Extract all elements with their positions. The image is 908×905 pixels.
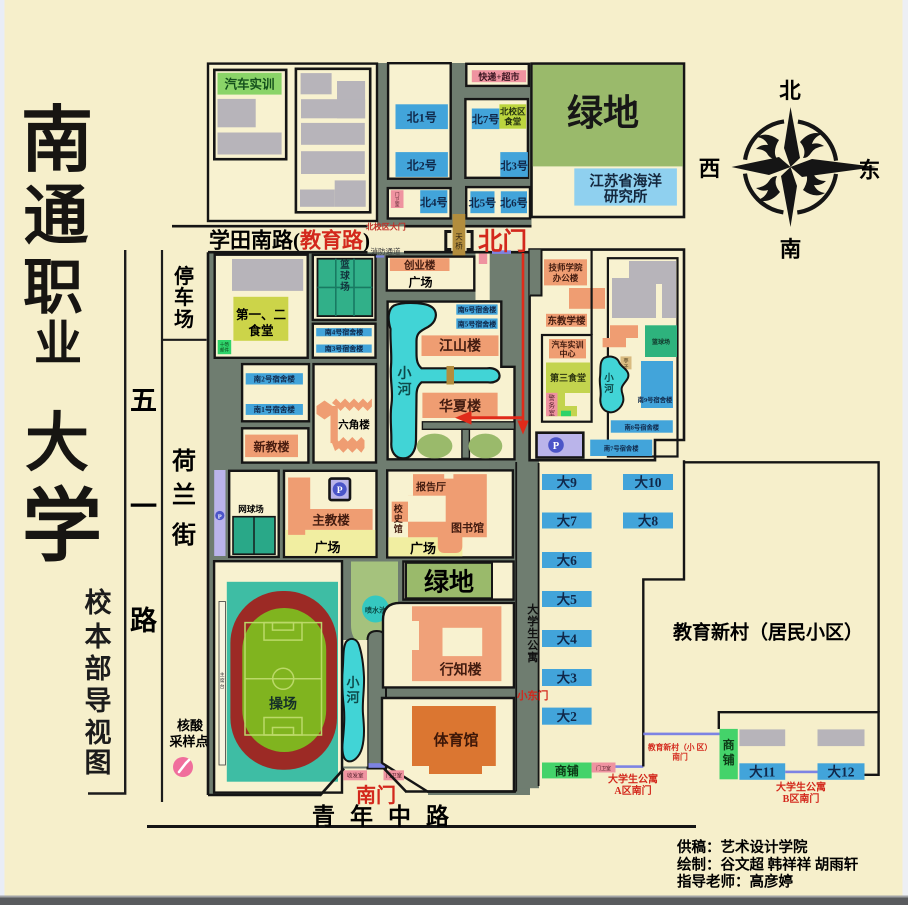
svg-text:邮件: 邮件 <box>220 347 230 354</box>
svg-text:主: 主 <box>220 671 225 678</box>
svg-text:亭: 亭 <box>623 358 628 365</box>
svg-text:南6号宿舍楼: 南6号宿舍楼 <box>458 305 497 314</box>
svg-text:街: 街 <box>171 521 196 549</box>
svg-text:学: 学 <box>22 484 102 572</box>
svg-text:席: 席 <box>220 677 225 684</box>
svg-text:史: 史 <box>394 513 404 524</box>
svg-text:大3: 大3 <box>557 669 577 685</box>
svg-text:学田南路(教育路): 学田南路(教育路) <box>209 229 370 253</box>
svg-text:路: 路 <box>130 605 158 636</box>
svg-text:南4号宿舍楼: 南4号宿舍楼 <box>325 328 364 337</box>
svg-text:南3号宿舍楼: 南3号宿舍楼 <box>325 344 364 353</box>
svg-text:指导老师：高彦婷: 指导老师：高彦婷 <box>677 873 793 891</box>
svg-text:北4号: 北4号 <box>420 195 448 209</box>
svg-text:商: 商 <box>723 737 735 752</box>
svg-text:生: 生 <box>527 626 538 640</box>
svg-text:铺: 铺 <box>723 752 735 767</box>
svg-text:台: 台 <box>220 683 225 690</box>
svg-text:绘制：谷文超 韩祥祥 胡雨轩: 绘制：谷文超 韩祥祥 胡雨轩 <box>677 856 859 874</box>
svg-text:大9: 大9 <box>557 474 577 490</box>
svg-text:北2号: 北2号 <box>407 157 437 172</box>
svg-text:第三食堂: 第三食堂 <box>550 372 586 383</box>
svg-text:南7号宿舍楼: 南7号宿舍楼 <box>604 444 639 453</box>
svg-text:馆: 馆 <box>394 523 403 534</box>
svg-text:北3号: 北3号 <box>500 159 528 173</box>
svg-text:大10: 大10 <box>635 474 662 490</box>
svg-text:第一、二: 第一、二 <box>236 307 287 322</box>
svg-text:篮: 篮 <box>339 259 350 271</box>
svg-text:部: 部 <box>85 653 112 684</box>
svg-text:职: 职 <box>23 255 83 321</box>
svg-text:操场: 操场 <box>269 696 297 713</box>
svg-text:南门: 南门 <box>672 752 688 762</box>
svg-text:一: 一 <box>130 492 157 522</box>
svg-text:核酸: 核酸 <box>177 718 204 733</box>
svg-text:P: P <box>553 441 560 452</box>
svg-text:河: 河 <box>604 383 614 395</box>
svg-text:广场: 广场 <box>408 275 432 290</box>
svg-text:场: 场 <box>174 308 194 331</box>
svg-text:场: 场 <box>340 281 350 293</box>
svg-text:研究所: 研究所 <box>604 188 648 206</box>
svg-text:北: 北 <box>779 79 801 103</box>
svg-text:绿地: 绿地 <box>424 568 474 597</box>
svg-text:汽车实训: 汽车实训 <box>224 77 274 92</box>
svg-text:球: 球 <box>340 270 350 282</box>
svg-text:门卫室: 门卫室 <box>596 765 611 772</box>
svg-text:河: 河 <box>346 690 359 705</box>
svg-text:大: 大 <box>25 408 89 479</box>
svg-text:采样点: 采样点 <box>168 734 208 749</box>
svg-text:校: 校 <box>394 503 404 514</box>
svg-text:视: 视 <box>85 718 112 748</box>
svg-text:通: 通 <box>23 181 88 253</box>
svg-text:大2: 大2 <box>557 708 577 724</box>
svg-text:办公楼: 办公楼 <box>553 273 579 283</box>
svg-text:大12: 大12 <box>828 763 855 779</box>
svg-text:荷: 荷 <box>172 448 196 475</box>
svg-text:主教楼: 主教楼 <box>312 513 350 528</box>
svg-text:小: 小 <box>603 372 614 384</box>
svg-text:校: 校 <box>85 587 112 618</box>
svg-text:创业楼: 创业楼 <box>403 258 436 271</box>
svg-text:小: 小 <box>346 675 359 690</box>
svg-text:桥: 桥 <box>455 241 463 251</box>
svg-text:大: 大 <box>527 602 538 616</box>
svg-text:南5号宿舍楼: 南5号宿舍楼 <box>458 319 497 328</box>
svg-text:警: 警 <box>548 393 555 402</box>
svg-text:食堂: 食堂 <box>247 323 273 338</box>
svg-text:导: 导 <box>85 686 112 716</box>
svg-text:供稿：艺术设计学院: 供稿：艺术设计学院 <box>676 838 808 856</box>
svg-text:东: 东 <box>859 158 881 183</box>
svg-text:网球场: 网球场 <box>238 504 264 514</box>
svg-text:北6号: 北6号 <box>500 196 528 210</box>
svg-text:北1号: 北1号 <box>407 110 437 125</box>
svg-text:技师学院: 技师学院 <box>548 263 583 273</box>
svg-text:本: 本 <box>85 622 112 652</box>
svg-text:南: 南 <box>21 101 93 181</box>
svg-text:门: 门 <box>395 191 400 198</box>
svg-text:南9号宿舍楼: 南9号宿舍楼 <box>638 395 673 404</box>
svg-text:汽车实训: 汽车实训 <box>552 340 584 350</box>
svg-text:教育新村（居民小区）: 教育新村（居民小区） <box>673 621 863 644</box>
svg-text:小: 小 <box>398 366 412 382</box>
svg-text:教育新村（小 区）: 教育新村（小 区） <box>647 742 712 752</box>
svg-text:中心: 中心 <box>560 349 576 359</box>
svg-text:北7号: 北7号 <box>472 112 500 126</box>
svg-text:篮球场: 篮球场 <box>651 338 670 346</box>
svg-text:大6: 大6 <box>557 552 577 568</box>
svg-text:业: 业 <box>34 318 82 371</box>
svg-text:广场: 广场 <box>314 540 340 555</box>
svg-text:大学生公寓: 大学生公寓 <box>608 773 658 786</box>
svg-text:南: 南 <box>780 238 802 262</box>
svg-text:青年中路: 青年中路 <box>312 803 464 829</box>
svg-text:南2号宿舍楼: 南2号宿舍楼 <box>254 374 296 384</box>
svg-text:五: 五 <box>130 386 157 416</box>
svg-text:大5: 大5 <box>557 591 577 607</box>
svg-text:新教楼: 新教楼 <box>253 439 289 454</box>
svg-text:西: 西 <box>699 157 721 181</box>
svg-text:北校区大门: 北校区大门 <box>366 222 406 232</box>
svg-text:北门: 北门 <box>478 227 527 256</box>
svg-text:收发室: 收发室 <box>347 772 364 780</box>
svg-text:大11: 大11 <box>749 763 776 779</box>
svg-text:北5号: 北5号 <box>469 196 497 210</box>
svg-text:卫: 卫 <box>395 197 400 203</box>
svg-text:商铺: 商铺 <box>555 763 579 778</box>
svg-text:大8: 大8 <box>638 512 659 528</box>
svg-text:P: P <box>218 514 222 521</box>
svg-text:体育馆: 体育馆 <box>433 731 478 749</box>
svg-text:P: P <box>337 486 343 496</box>
svg-text:车: 车 <box>174 285 194 309</box>
svg-text:广场: 广场 <box>410 541 436 556</box>
svg-text:北校区: 北校区 <box>500 107 526 117</box>
svg-text:河: 河 <box>398 381 412 398</box>
svg-text:六角楼: 六角楼 <box>338 418 370 431</box>
svg-text:东教学楼: 东教学楼 <box>547 315 586 327</box>
svg-text:消防通道: 消防通道 <box>371 246 401 256</box>
svg-text:大7: 大7 <box>557 512 577 528</box>
svg-text:图书馆: 图书馆 <box>451 521 484 535</box>
svg-text:行知楼: 行知楼 <box>439 662 482 679</box>
svg-text:华夏楼: 华夏楼 <box>439 398 481 415</box>
svg-text:大4: 大4 <box>557 630 577 646</box>
svg-text:A区南门: A区南门 <box>614 784 651 797</box>
svg-text:B区南门: B区南门 <box>783 792 820 805</box>
svg-text:图: 图 <box>85 748 112 778</box>
svg-text:室: 室 <box>548 408 555 417</box>
svg-text:寓: 寓 <box>527 650 538 664</box>
svg-text:绿地: 绿地 <box>567 93 639 133</box>
svg-text:小东门: 小东门 <box>516 689 549 702</box>
svg-text:江山楼: 江山楼 <box>439 338 481 355</box>
svg-text:兰: 兰 <box>172 481 196 509</box>
svg-text:南1号宿舍楼: 南1号宿舍楼 <box>254 404 296 414</box>
svg-text:快递+超市: 快递+超市 <box>478 71 519 82</box>
svg-text:室: 室 <box>395 201 400 208</box>
svg-text:报告厅: 报告厅 <box>416 481 446 494</box>
svg-text:天: 天 <box>455 233 463 242</box>
svg-text:食堂: 食堂 <box>504 117 522 127</box>
svg-text:江苏省海洋: 江苏省海洋 <box>589 172 662 190</box>
svg-text:公: 公 <box>527 639 538 652</box>
svg-text:南8号宿舍楼: 南8号宿舍楼 <box>624 422 659 431</box>
svg-text:务: 务 <box>548 401 555 410</box>
svg-text:停: 停 <box>174 264 194 288</box>
svg-text:大学生公寓: 大学生公寓 <box>776 781 826 794</box>
svg-text:学: 学 <box>527 614 538 628</box>
